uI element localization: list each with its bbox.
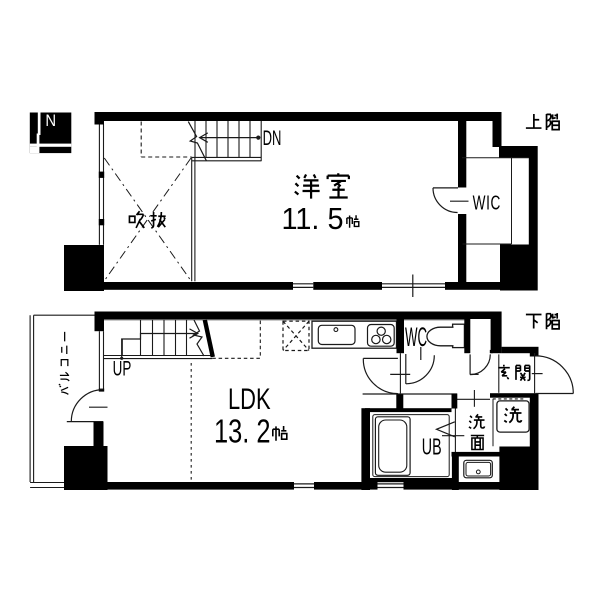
svg-text:N: N [45,112,56,130]
svg-text:11. 5: 11. 5 [282,202,344,236]
svg-text:13. 2: 13. 2 [214,413,271,450]
svg-text:LDK: LDK [228,382,271,416]
svg-text:UP: UP [113,357,132,381]
svg-text:DN: DN [263,126,282,150]
svg-text:WC: WC [405,323,427,352]
svg-text:UB: UB [422,435,442,460]
svg-text:WIC: WIC [473,192,501,214]
